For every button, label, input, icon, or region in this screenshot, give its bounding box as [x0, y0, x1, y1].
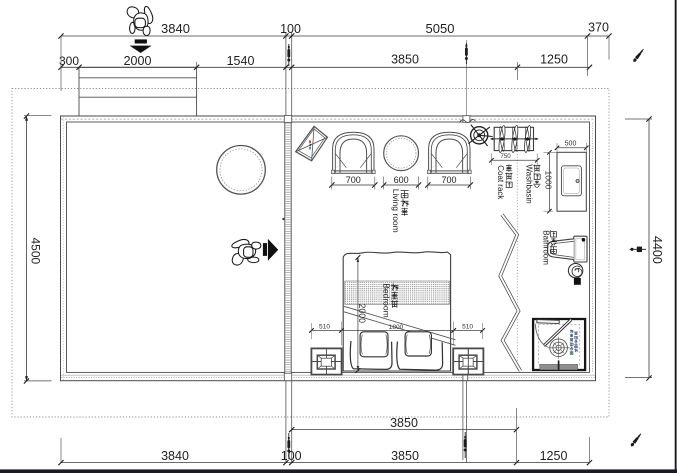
- svg-text:100: 100: [281, 449, 302, 463]
- svg-text:300: 300: [59, 54, 79, 68]
- svg-text:3840: 3840: [161, 21, 190, 36]
- svg-text:Coat rack: Coat rack: [496, 165, 505, 200]
- svg-text:1000: 1000: [543, 171, 553, 190]
- svg-text:3850: 3850: [391, 449, 419, 463]
- svg-text:700: 700: [441, 175, 456, 185]
- svg-text:Washbasin: Washbasin: [524, 164, 533, 203]
- svg-text:1800: 1800: [389, 324, 404, 331]
- svg-text:Living room: Living room: [391, 189, 401, 233]
- svg-text:1250: 1250: [540, 53, 568, 67]
- svg-text:Bedroom: Bedroom: [382, 283, 392, 318]
- svg-text:2000: 2000: [124, 54, 152, 68]
- svg-text:500: 500: [565, 140, 577, 147]
- svg-text:600: 600: [394, 175, 409, 185]
- svg-text:700: 700: [346, 175, 361, 185]
- svg-text:2000: 2000: [357, 304, 367, 324]
- svg-text:3850: 3850: [391, 53, 419, 67]
- svg-text:510: 510: [319, 324, 330, 331]
- svg-text:750: 750: [500, 153, 511, 160]
- svg-text:100: 100: [280, 22, 301, 36]
- svg-text:Bathroom: Bathroom: [541, 230, 550, 265]
- svg-text:3850: 3850: [390, 416, 418, 430]
- svg-text:1250: 1250: [540, 449, 568, 463]
- svg-text:370: 370: [588, 21, 609, 35]
- svg-text:4500: 4500: [29, 238, 43, 265]
- svg-text:510: 510: [462, 323, 473, 330]
- svg-text:1540: 1540: [227, 54, 255, 68]
- svg-text:3840: 3840: [161, 449, 189, 463]
- svg-text:4400: 4400: [650, 236, 664, 264]
- svg-text:5050: 5050: [426, 21, 455, 36]
